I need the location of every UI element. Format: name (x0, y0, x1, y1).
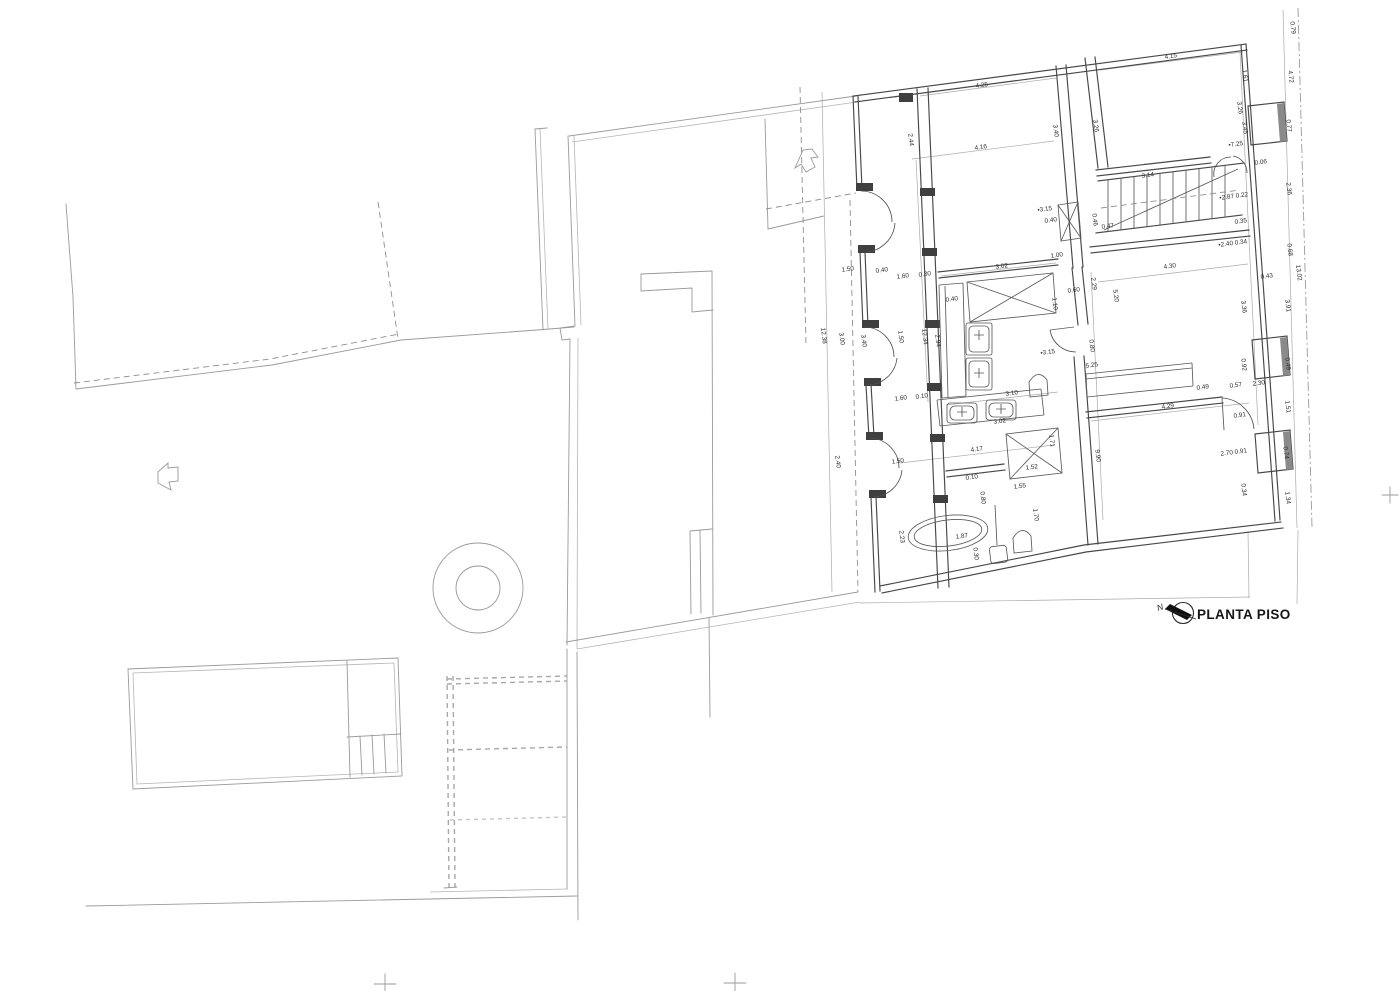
dimension-label: 3.00 (837, 332, 846, 346)
dimension-lines (822, 8, 1312, 604)
dimension-label: 1.50 (896, 330, 905, 344)
dimension-label: 2.23 (897, 530, 906, 544)
dimension-label: 2.29 (1089, 277, 1098, 291)
dimension-label: 1.60 (894, 394, 908, 403)
dimension-label: 4.30 (1163, 262, 1177, 271)
dimension-label: 0.79 (1288, 21, 1297, 35)
dimension-label: •2.87 0.22 (1219, 191, 1249, 202)
floor-plan-sheet: 4.254.150.792.444.163.403.261.614.723.26… (0, 0, 1400, 991)
dimension-label: 1.00 (1050, 251, 1064, 260)
well-circle (433, 543, 523, 633)
plan-title: PLANTA PISO (1197, 607, 1291, 622)
dimension-label: 0.60 (1067, 286, 1081, 295)
dimension-label: 1.34 (1283, 491, 1292, 505)
dimension-label: 2.30 (1252, 379, 1266, 388)
dimension-label: 3.45 (1240, 121, 1249, 135)
dimension-label: 4.16 (974, 143, 988, 152)
dimension-label: 3.14 (1141, 171, 1155, 180)
bay-windows (1248, 102, 1293, 473)
dimension-label: 3.26 (1235, 101, 1244, 115)
steps-grid (444, 676, 567, 889)
dimension-label: 2.36 (1284, 182, 1293, 196)
dimension-label: 1.52 (1025, 463, 1039, 472)
dimension-label: 3.40 (1051, 124, 1060, 138)
dimension-label: 2.44 (906, 133, 915, 147)
dimension-label: 1.10 (1050, 297, 1059, 311)
dimension-label: 1.60 (896, 272, 910, 281)
dimension-label: 0.92 (1239, 358, 1248, 372)
dimension-label: 9.90 (1093, 449, 1102, 463)
dimension-label: 5.25 (1085, 361, 1099, 370)
floor-plan-drawing: 4.254.150.792.444.163.403.261.614.723.26… (0, 0, 1400, 991)
dimension-labels: 4.254.150.792.444.163.403.261.614.723.26… (819, 21, 1303, 561)
dimension-label: 0.91 (1233, 411, 1247, 420)
sheet-edge-ticks (374, 487, 1398, 991)
dimension-label: •3.15 (1040, 348, 1056, 357)
dimension-label: 0.40 (875, 266, 889, 275)
dimension-label: 0.10 (965, 473, 979, 482)
dimension-label: 1.50 (841, 265, 855, 274)
site-arrow-icon (158, 463, 178, 490)
dimension-label: 2.40 (833, 455, 842, 469)
dimension-label: 13.02 (1294, 264, 1303, 281)
dimension-label: 12.34 (920, 328, 929, 345)
dimension-label: 0.68 (1285, 243, 1294, 257)
dimension-label: 0.34 (1239, 483, 1248, 497)
dimension-label: 5.20 (1111, 289, 1120, 303)
dimension-label: 2.94 (933, 334, 942, 348)
dimension-label: 0.43 (1260, 272, 1274, 281)
dimension-label: 4.29 (1161, 402, 1175, 411)
dimension-label: 0.06 (1254, 158, 1268, 167)
dimension-label: 3.40 (859, 334, 868, 348)
dimension-label: 0.10 (915, 392, 929, 401)
dimension-label: 0.80 (1087, 339, 1096, 353)
dimension-label: 2.70 0.91 (1220, 447, 1248, 457)
dimension-label: 3.02 (995, 262, 1009, 271)
site-boundary (66, 128, 574, 389)
toilet-icon (1013, 530, 1032, 553)
dimension-label: 4.17 (970, 445, 984, 454)
dimension-label: 4.72 (1286, 70, 1295, 84)
dimension-label: 1.51 (1283, 400, 1292, 414)
dimension-label: 0.30 (971, 547, 980, 561)
dimension-label: 0.74 (1281, 446, 1290, 460)
dimension-label: 0.30 (918, 270, 932, 279)
entrance-area (765, 87, 856, 345)
patio-edges (86, 96, 860, 920)
entrance-arrow-icon (795, 149, 818, 172)
dimension-label: 0.35 (1234, 217, 1248, 226)
dimension-label: 0.57 (1229, 381, 1243, 390)
dimension-label: 3.91 (1283, 299, 1292, 313)
dimension-label: •7.25 (1228, 140, 1244, 149)
dimension-label: 12.38 (819, 327, 828, 344)
dimension-label: 1.55 (1013, 482, 1027, 491)
dimension-label: 3.02 (993, 417, 1007, 426)
dimension-label: 0.46 (1090, 213, 1099, 227)
dimension-label: 0.80 (978, 491, 987, 505)
dimension-label: 1.70 (1031, 508, 1040, 522)
dimension-label: 3.26 (1091, 119, 1100, 133)
dimension-label: 0.40 (1044, 216, 1058, 225)
dimension-label: 0.49 (1196, 383, 1210, 392)
dimension-label: 1.50 (891, 457, 905, 466)
house-plan (853, 44, 1293, 593)
dimension-label: 3.36 (1239, 300, 1248, 314)
north-letter: N (1156, 601, 1166, 613)
dimension-label: •3.15 (1037, 205, 1053, 214)
pool (128, 658, 402, 789)
dimension-label: •2.40 0.34 (1218, 238, 1248, 249)
title-block: N PLANTA PISO (1156, 601, 1291, 623)
wall-piers (856, 93, 948, 503)
dimension-label: 0.47 (1101, 222, 1115, 231)
dimension-label: 0.40 (945, 295, 959, 304)
dimension-label: 4.25 (975, 81, 989, 90)
dimension-label: 1.87 (955, 532, 969, 541)
